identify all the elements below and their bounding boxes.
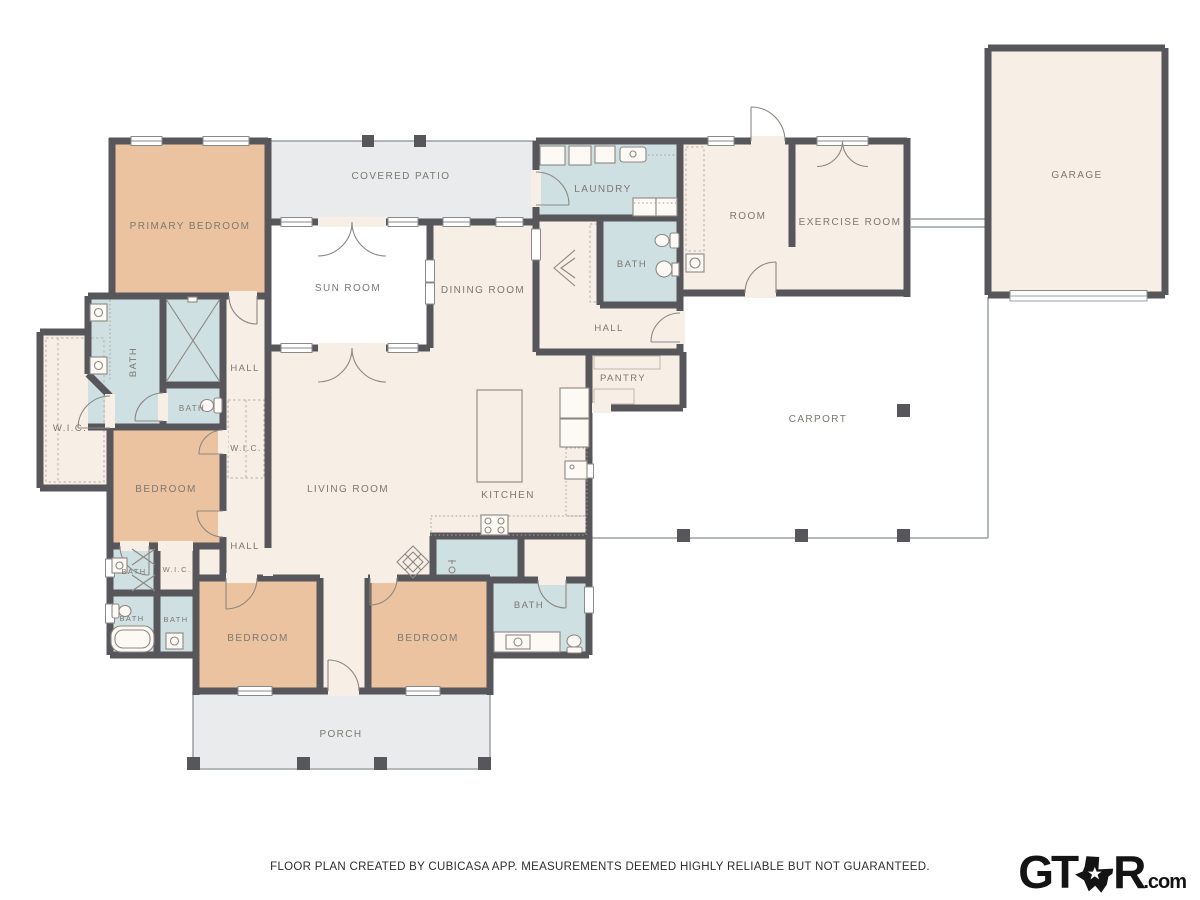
door-gap-front <box>328 686 359 696</box>
floor-plan-page: PRIMARY BEDROOM COVERED PATIO LAUNDRY RO… <box>0 0 1200 900</box>
door-gap-bed1 <box>226 573 257 583</box>
porch-post <box>478 757 491 770</box>
room-label-exercise-room: EXERCISE ROOM <box>799 217 902 228</box>
room-label-sun-room: SUN ROOM <box>315 283 381 294</box>
door-gap-primary <box>229 291 257 301</box>
door-gap-wic-b <box>158 541 193 551</box>
door-gap-bedl-bath <box>120 541 149 551</box>
room-label-wic-left: W.I.C. <box>53 423 87 434</box>
floor-plan-canvas: PRIMARY BEDROOM COVERED PATIO LAUNDRY RO… <box>0 0 1200 900</box>
carport-post <box>897 404 910 417</box>
room-label-laundry: LAUNDRY <box>574 184 631 195</box>
room-label-covered-patio: COVERED PATIO <box>352 171 451 182</box>
room-label-bedroom-left: BEDROOM <box>135 484 196 495</box>
room-label-bath-b: BATH <box>119 614 144 623</box>
logo-text-gt: GT <box>1018 850 1076 894</box>
carport-post <box>677 529 690 542</box>
area-vestibule <box>433 536 521 580</box>
gtar-logo: GT R .com <box>1018 850 1186 894</box>
door-gap-bedl-1 <box>218 430 228 454</box>
room-label-room: ROOM <box>730 211 767 222</box>
garage-door-panel <box>1010 296 1147 301</box>
room-label-primary-bedroom: PRIMARY BEDROOM <box>130 221 251 232</box>
room-label-dining-room: DINING ROOM <box>441 285 525 296</box>
room-label-bedroom-2: BEDROOM <box>397 633 458 644</box>
porch-post <box>374 757 387 770</box>
room-label-bath-small: BATH <box>179 404 205 413</box>
room-label-hall-bottom: HALL <box>230 541 259 552</box>
door-gap-room <box>745 288 776 298</box>
room-label-wic-bottom: W.I.C. <box>163 565 192 574</box>
porch-post <box>297 757 310 770</box>
door-gap-pantry <box>592 403 611 413</box>
room-label-pantry: PANTRY <box>600 373 646 384</box>
area-closet <box>521 536 589 580</box>
door-gap-laundry <box>531 170 541 207</box>
door-gap-wic-left <box>105 394 115 428</box>
area-entry-corridor <box>320 578 368 691</box>
texas-star-icon <box>1074 855 1114 895</box>
room-label-bath-t: BATH <box>121 567 146 576</box>
door-gap-hall-carport <box>675 311 685 344</box>
door-gap-bedl-2 <box>218 511 228 537</box>
room-label-wic-mid: W.I.C. <box>230 443 262 453</box>
room-label-hall-top: HALL <box>230 363 259 374</box>
room-label-hall-right: HALL <box>594 323 623 334</box>
room-label-living-room: LIVING ROOM <box>307 484 389 495</box>
door-gap-hall-living <box>263 548 273 576</box>
carport-post <box>795 529 808 542</box>
room-label-porch: PORCH <box>319 729 362 740</box>
room-label-bath-c: BATH <box>163 615 188 624</box>
patio-post <box>414 135 426 147</box>
logo-text-r: R <box>1113 850 1143 894</box>
room-label-carport: CARPORT <box>789 414 848 425</box>
logo-text-com: .com <box>1143 871 1186 894</box>
room-label-garage: GARAGE <box>1051 170 1102 181</box>
room-label-bedroom-1: BEDROOM <box>227 633 288 644</box>
door-gap-closet-bath <box>538 575 566 585</box>
room-label-bath-big: BATH <box>128 347 139 377</box>
door-gap-baths <box>158 393 168 421</box>
room-label-bath-top: BATH <box>617 259 647 270</box>
porch-post <box>187 757 200 770</box>
carport-post <box>897 529 910 542</box>
garage-connector-lines <box>911 219 988 227</box>
patio-post <box>362 135 374 147</box>
door-gap-room-ext <box>751 136 785 146</box>
room-label-kitchen: KITCHEN <box>481 490 535 501</box>
area-hall-ext <box>196 546 223 578</box>
room-label-bath-right: BATH <box>514 600 544 611</box>
area-primary-bedroom <box>112 138 268 296</box>
door-gap-bed2 <box>370 573 397 583</box>
